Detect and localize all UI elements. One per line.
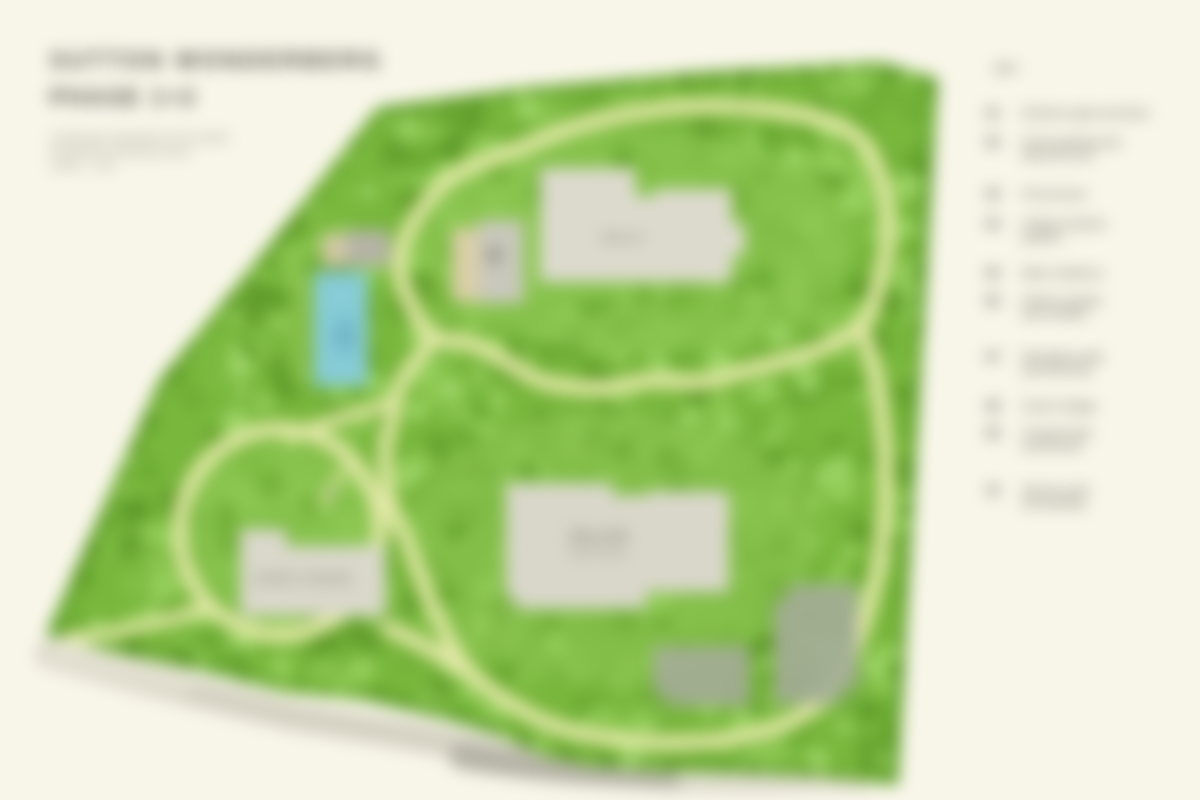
svg-text:and terrace: and terrace — [1022, 439, 1083, 453]
svg-text:MAIN HOUSE: MAIN HOUSE — [569, 548, 626, 558]
svg-text:Service yard: Service yard — [1022, 483, 1089, 497]
svg-text:Guest parking and: Guest parking and — [1022, 135, 1120, 149]
svg-text:10: 10 — [986, 483, 1000, 497]
svg-text:08: 08 — [986, 399, 1000, 413]
svg-text:Prepared for planning review: Prepared for planning review — [50, 146, 191, 158]
svg-text:Woodland walk: Woodland walk — [1022, 350, 1104, 364]
svg-text:07: 07 — [986, 350, 1000, 364]
svg-text:POOL: POOL — [332, 332, 357, 342]
svg-text:and orchard: and orchard — [1022, 307, 1086, 321]
svg-text:KEY: KEY — [995, 64, 1019, 75]
svg-text:05: 05 — [986, 266, 1000, 280]
svg-text:VILLA B: VILLA B — [569, 528, 627, 545]
svg-text:VILLA A: VILLA A — [601, 232, 643, 244]
svg-text:Scale 1 : 500: Scale 1 : 500 — [50, 160, 114, 172]
svg-text:03: 03 — [986, 187, 1000, 201]
svg-text:Croquet lawn: Croquet lawn — [1022, 426, 1093, 440]
svg-text:Pool terrace: Pool terrace — [1022, 187, 1087, 201]
svg-text:01: 01 — [986, 106, 1000, 120]
svg-text:Landscape masterplan for the e: Landscape masterplan for the estate — [50, 132, 229, 144]
svg-text:Outdoor kitchen: Outdoor kitchen — [1022, 217, 1107, 231]
svg-text:Main residence: Main residence — [1022, 266, 1104, 280]
svg-text:09: 09 — [986, 426, 1000, 440]
svg-text:pavilion: pavilion — [1022, 230, 1063, 244]
svg-text:06: 06 — [986, 294, 1000, 308]
svg-text:04: 04 — [986, 217, 1000, 231]
svg-text:02: 02 — [986, 135, 1000, 149]
svg-text:and parking: and parking — [1022, 496, 1085, 510]
svg-text:Kitchen garden: Kitchen garden — [1022, 294, 1103, 308]
svg-text:and trail loop: and trail loop — [1022, 363, 1091, 377]
svg-text:GUEST HOUSE: GUEST HOUSE — [254, 572, 352, 586]
svg-text:Entrance gate and drive: Entrance gate and drive — [1022, 106, 1150, 120]
svg-text:PHASE 1+2: PHASE 1+2 — [50, 84, 197, 110]
svg-text:Guest cottage: Guest cottage — [1022, 399, 1097, 413]
svg-text:SUTTON WONDERBERG: SUTTON WONDERBERG — [50, 47, 383, 73]
svg-text:drop-off court: drop-off court — [1022, 148, 1094, 162]
